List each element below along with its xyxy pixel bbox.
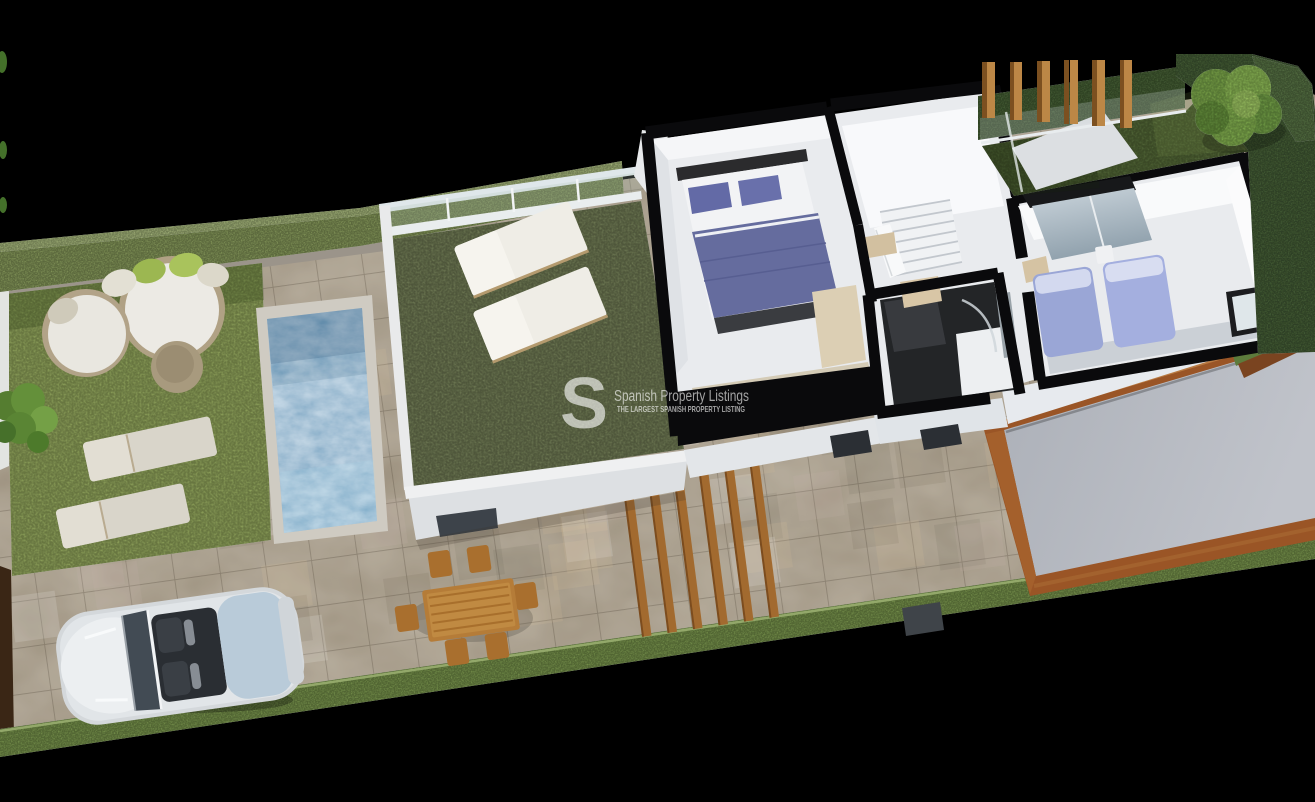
svg-text:S: S	[560, 364, 608, 444]
svg-text:Spanish Property Listings: Spanish Property Listings	[614, 388, 749, 405]
svg-text:THE LARGEST SPANISH PROPERTY L: THE LARGEST SPANISH PROPERTY LISTING	[617, 405, 745, 414]
